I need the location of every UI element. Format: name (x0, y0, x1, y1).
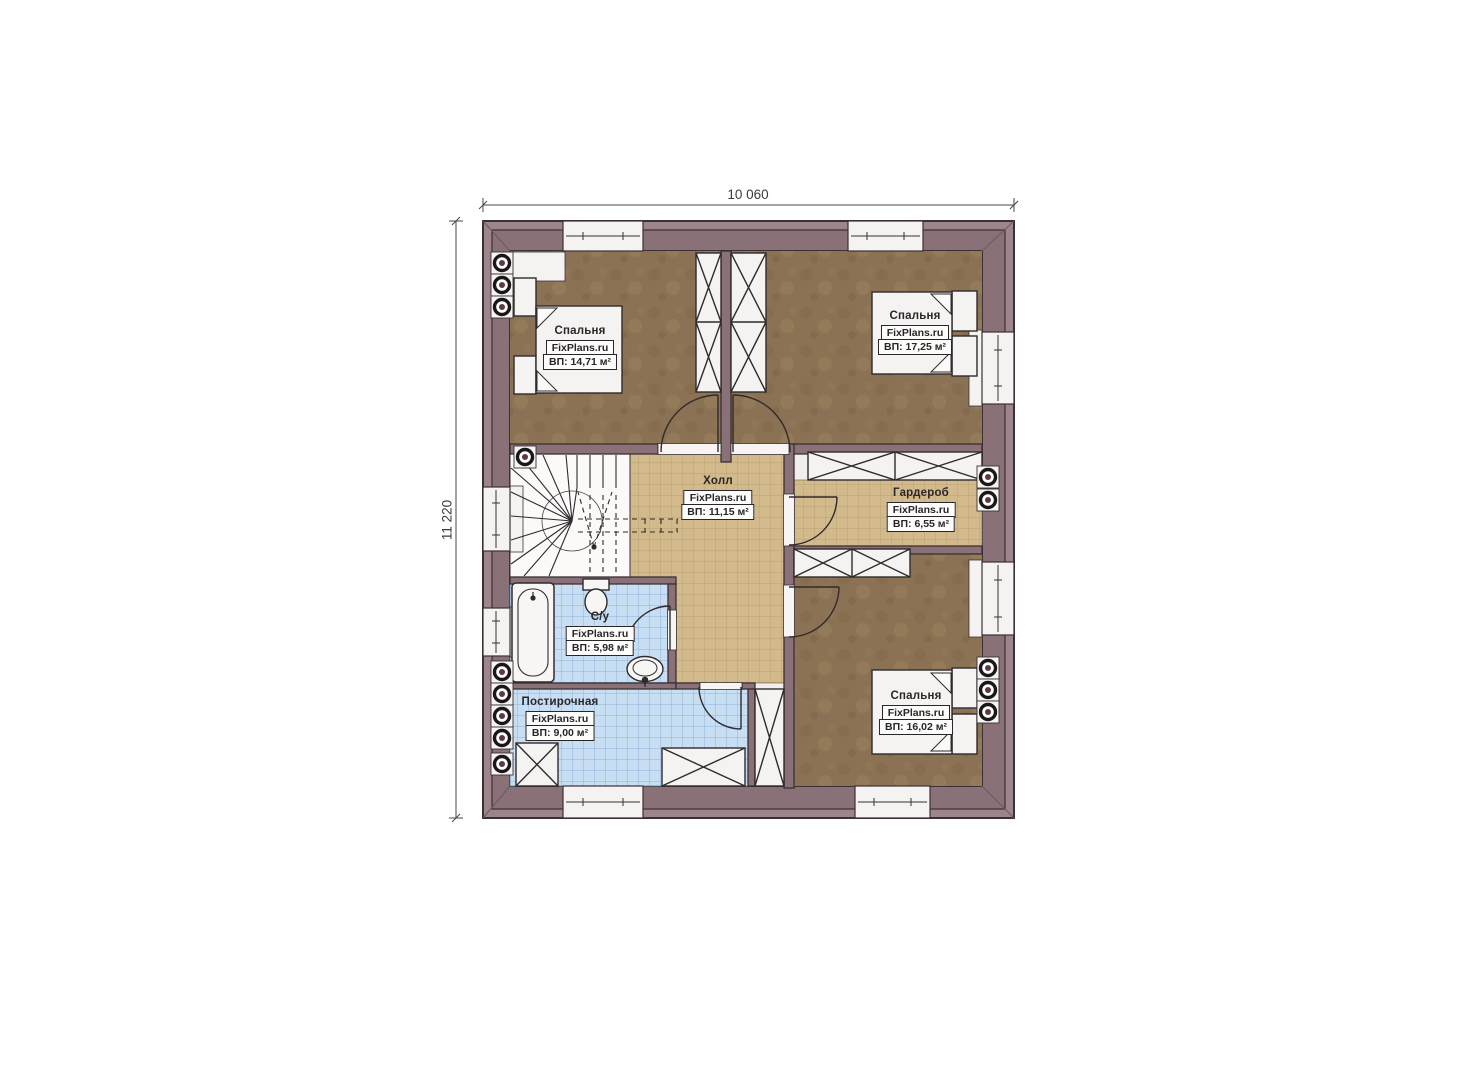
label-bedroom-bottom-right: Спальня FixPlans.ru ВП: 16,02 м² (879, 690, 953, 735)
floor-plan-page: 10 060 11 220 Спальня FixPlans.ru ВП: 14… (0, 0, 1473, 1080)
label-bathroom: С/у FixPlans.ru ВП: 5,98 м² (566, 611, 635, 656)
dimension-width-label: 10 060 (727, 187, 768, 202)
room-name: Холл (703, 475, 733, 487)
room-name: Гардероб (893, 487, 949, 499)
room-name: Спальня (554, 325, 605, 337)
area-tag: ВП: 17,25 м² (878, 339, 952, 355)
room-name: Спальня (889, 310, 940, 322)
label-wardrobe: Гардероб FixPlans.ru ВП: 6,55 м² (887, 487, 956, 532)
room-name: С/у (591, 611, 610, 623)
label-laundry: Постирочная FixPlans.ru ВП: 9,00 м² (522, 696, 599, 741)
area-tag: ВП: 9,00 м² (526, 725, 594, 741)
label-hall: Холл FixPlans.ru ВП: 11,15 м² (681, 475, 754, 520)
room-name: Постирочная (522, 696, 599, 708)
label-bedroom-top-right: Спальня FixPlans.ru ВП: 17,25 м² (878, 310, 952, 355)
area-tag: ВП: 5,98 м² (566, 640, 634, 656)
room-name: Спальня (890, 690, 941, 702)
labels-layer: 10 060 11 220 Спальня FixPlans.ru ВП: 14… (0, 0, 1473, 1080)
area-tag: ВП: 11,15 м² (681, 504, 754, 520)
label-bedroom-top-left: Спальня FixPlans.ru ВП: 14,71 м² (543, 325, 617, 370)
dimension-height-label: 11 220 (440, 500, 455, 540)
area-tag: ВП: 6,55 м² (887, 516, 955, 532)
area-tag: ВП: 14,71 м² (543, 354, 617, 370)
area-tag: ВП: 16,02 м² (879, 719, 953, 735)
